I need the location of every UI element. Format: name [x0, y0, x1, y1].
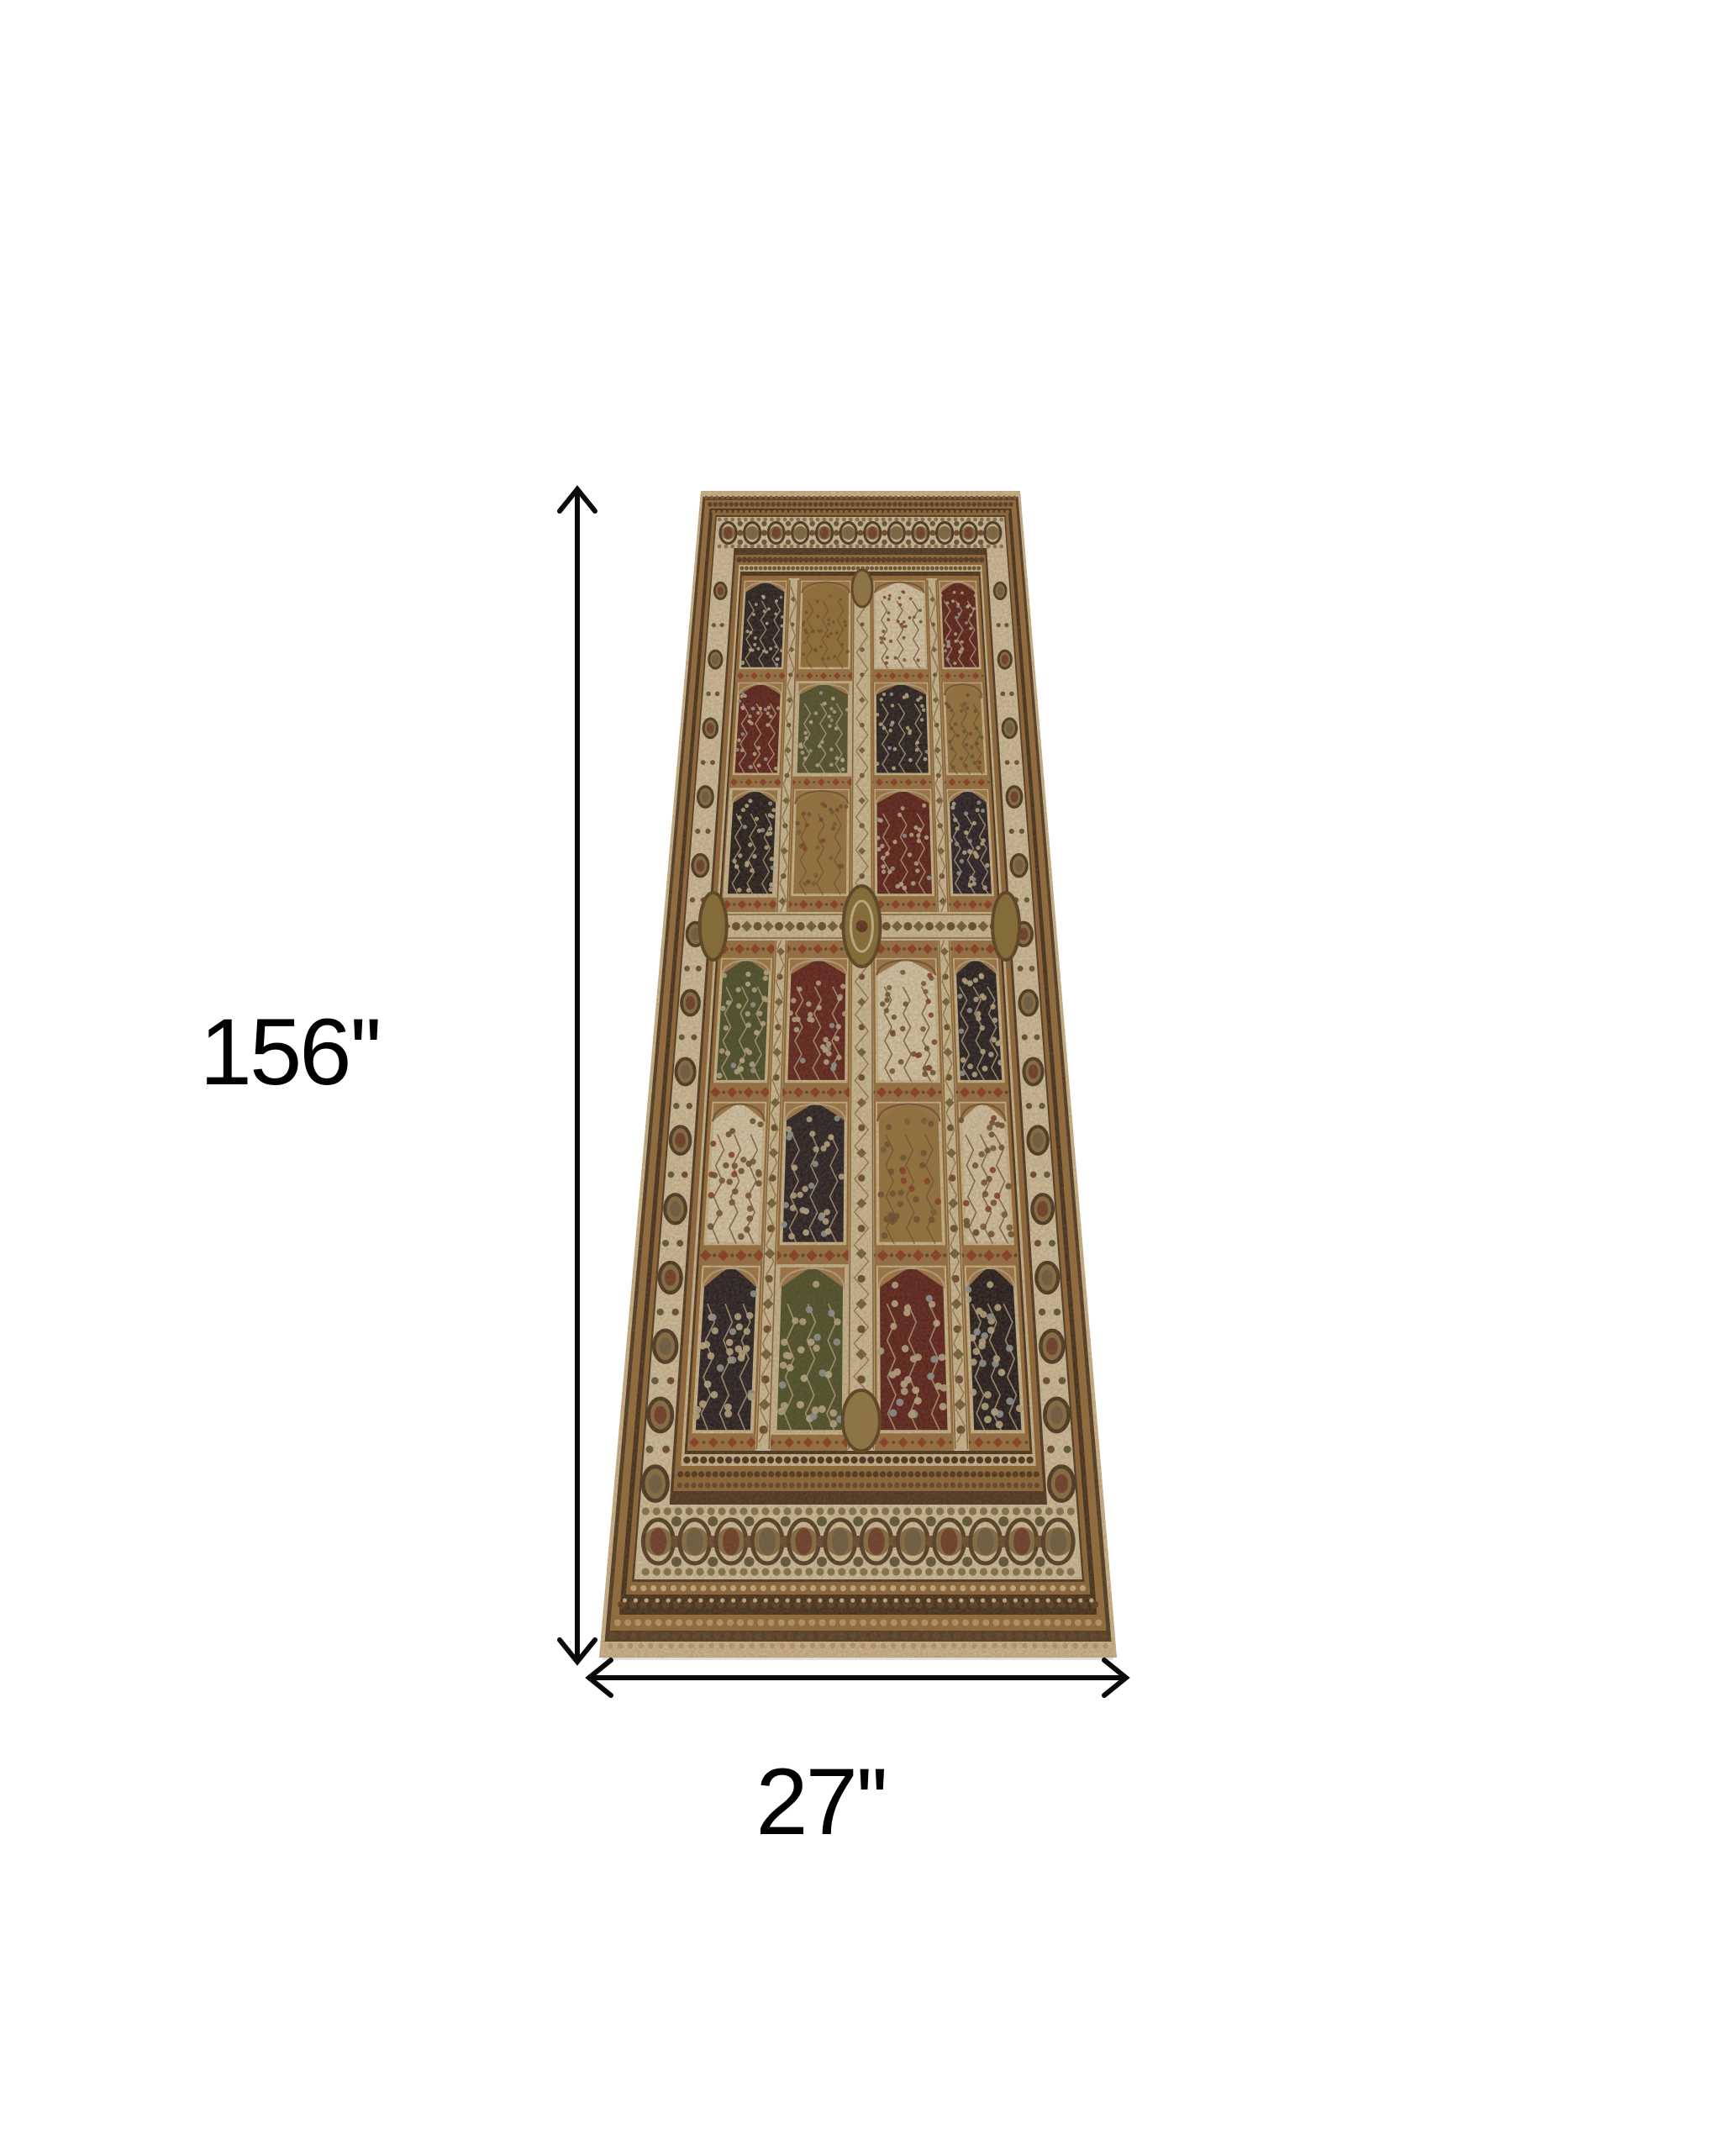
svg-text:156'': 156'' — [200, 999, 381, 1104]
svg-text:27'': 27'' — [755, 1749, 886, 1854]
